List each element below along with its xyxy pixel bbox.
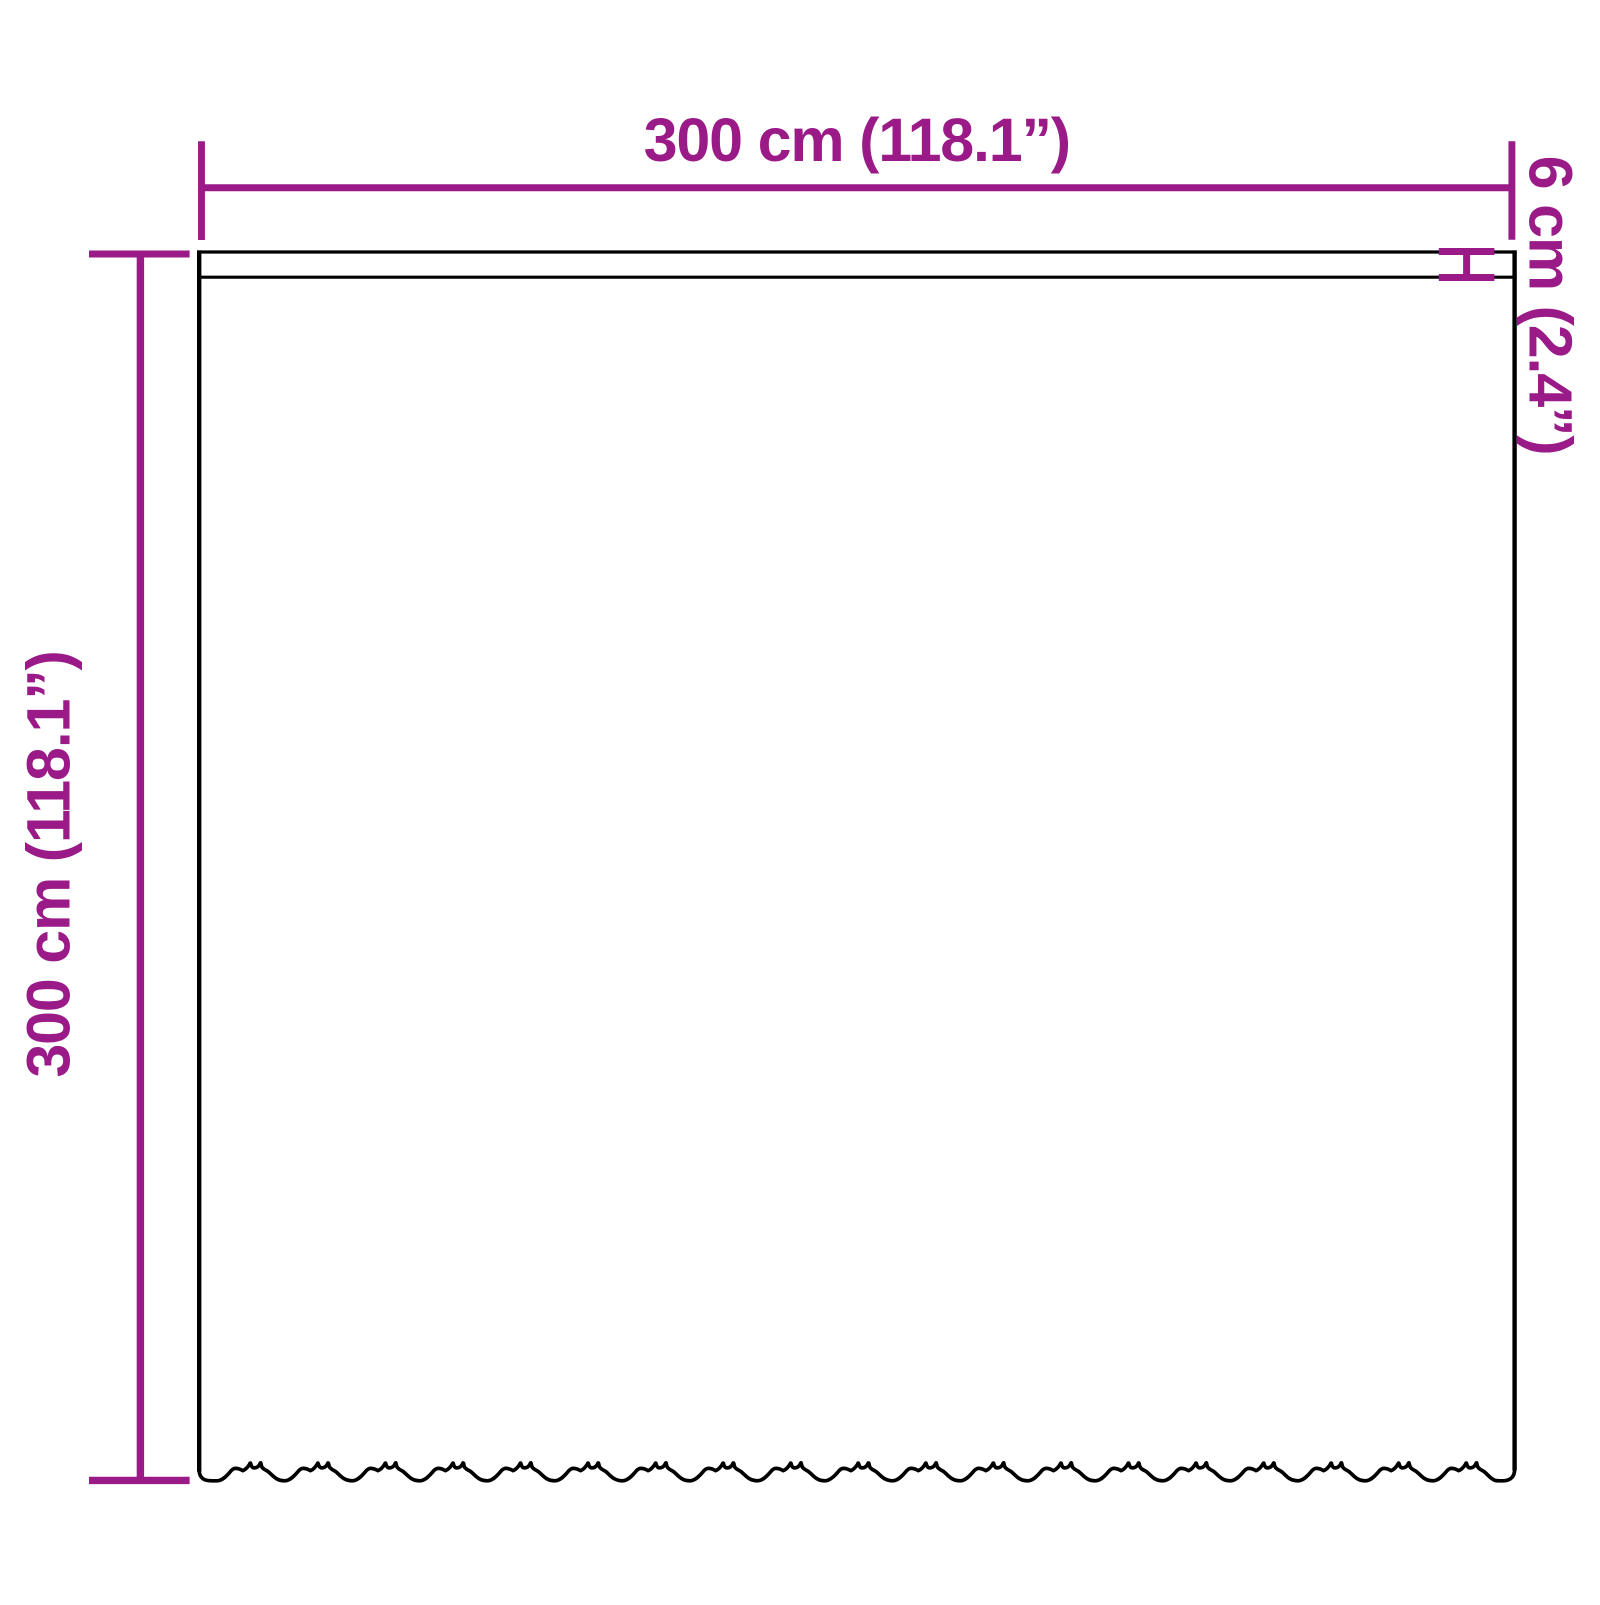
svg-text:6 cm (2.4”): 6 cm (2.4”) [1517,156,1585,455]
svg-text:300 cm (118.1”): 300 cm (118.1”) [644,106,1070,174]
svg-text:300 cm (118.1”): 300 cm (118.1”) [15,651,83,1077]
